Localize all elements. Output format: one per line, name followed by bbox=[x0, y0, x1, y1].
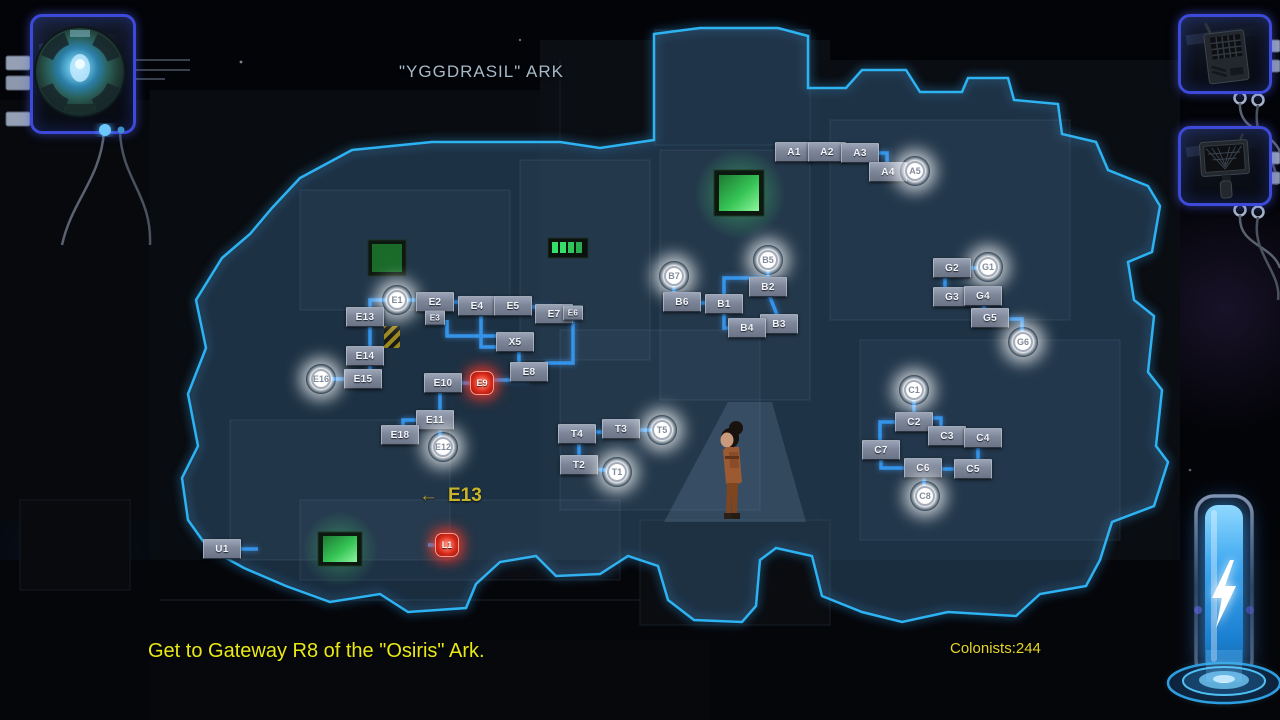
map-node-E13[interactable]: E13 bbox=[346, 307, 384, 327]
map-node-E8[interactable]: E8 bbox=[510, 362, 548, 382]
map-node-E1[interactable]: E1 bbox=[382, 285, 412, 315]
map-node-B4[interactable]: B4 bbox=[728, 318, 766, 338]
map-node-label: C6 bbox=[916, 463, 929, 474]
map-node-C5[interactable]: C5 bbox=[954, 459, 992, 479]
map-node-E2[interactable]: E2 bbox=[416, 292, 454, 312]
map-node-label: T5 bbox=[657, 425, 668, 435]
map-title: "YGGDRASIL" ARK bbox=[399, 62, 564, 82]
map-node-label: L1 bbox=[442, 540, 453, 550]
map-node-C4[interactable]: C4 bbox=[964, 428, 1002, 448]
map-node-E9[interactable]: E9 bbox=[470, 371, 494, 395]
map-node-label: B3 bbox=[772, 319, 785, 330]
direction-sign-label: E13 bbox=[448, 485, 482, 506]
map-node-L1[interactable]: L1 bbox=[435, 533, 459, 557]
map-node-E11[interactable]: E11 bbox=[416, 410, 454, 430]
map-node-label: A1 bbox=[787, 147, 800, 158]
map-node-E6[interactable]: E6 bbox=[563, 306, 583, 321]
map-node-C6[interactable]: C6 bbox=[904, 458, 942, 478]
map-node-B5[interactable]: B5 bbox=[753, 245, 783, 275]
map-node-E4[interactable]: E4 bbox=[458, 296, 496, 316]
map-node-label: T4 bbox=[571, 429, 583, 440]
panel-indicator-lights bbox=[93, 123, 133, 137]
map-node-label: G2 bbox=[945, 263, 959, 274]
map-node-label: E11 bbox=[426, 415, 444, 426]
map-node-label: B4 bbox=[740, 323, 753, 334]
map-node-label: E15 bbox=[354, 374, 373, 385]
map-node-C3[interactable]: C3 bbox=[928, 426, 966, 446]
game-screen: A1A2A3A4A5B5B7B2B6B1B3B4G1G2G3G4G5G6E1E2… bbox=[0, 0, 1280, 720]
colonists-counter: Colonists:244 bbox=[950, 640, 1041, 657]
map-node-label: C5 bbox=[966, 464, 979, 475]
map-node-label: T3 bbox=[615, 424, 627, 435]
map-node-label: C1 bbox=[908, 385, 920, 395]
map-node-C8[interactable]: C8 bbox=[910, 481, 940, 511]
scanner-device-panel[interactable] bbox=[1178, 126, 1272, 206]
map-node-label: E3 bbox=[430, 314, 440, 323]
map-node-label: E6 bbox=[568, 309, 578, 318]
direction-sign: ←E13 bbox=[419, 485, 482, 507]
map-node-G6[interactable]: G6 bbox=[1008, 327, 1038, 357]
map-node-label: G5 bbox=[983, 313, 997, 324]
map-node-label: A3 bbox=[853, 148, 866, 159]
map-node-label: E4 bbox=[471, 301, 484, 312]
map-node-label: T2 bbox=[573, 460, 585, 471]
map-node-label: E8 bbox=[523, 367, 536, 378]
ark-core-icon bbox=[30, 22, 130, 122]
map-node-label: B1 bbox=[717, 299, 730, 310]
map-node-E16[interactable]: E16 bbox=[306, 364, 336, 394]
map-node-X5[interactable]: X5 bbox=[496, 332, 534, 352]
objective-text: Get to Gateway R8 of the "Osiris" Ark. bbox=[148, 640, 485, 663]
map-node-label: E1 bbox=[391, 295, 402, 305]
ark-status-panel[interactable] bbox=[30, 14, 136, 134]
map-node-A3[interactable]: A3 bbox=[841, 143, 879, 163]
radio-transmitter-icon bbox=[1193, 19, 1257, 87]
map-node-label: X5 bbox=[509, 337, 522, 348]
map-node-label: A4 bbox=[881, 167, 894, 178]
map-node-label: E9 bbox=[476, 378, 487, 388]
map-node-G5[interactable]: G5 bbox=[971, 308, 1009, 328]
map-node-label: E2 bbox=[429, 297, 442, 308]
map-node-G1[interactable]: G1 bbox=[973, 252, 1003, 282]
map-node-T1[interactable]: T1 bbox=[602, 457, 632, 487]
map-node-E12[interactable]: E12 bbox=[428, 432, 458, 462]
map-node-label: E13 bbox=[356, 312, 375, 323]
map-node-label: T1 bbox=[612, 467, 623, 477]
map-node-label: G6 bbox=[1017, 337, 1029, 347]
map-node-label: A2 bbox=[820, 147, 833, 158]
map-node-E15[interactable]: E15 bbox=[344, 369, 382, 389]
map-node-label: E5 bbox=[507, 301, 520, 312]
map-node-label: E16 bbox=[313, 374, 329, 384]
map-node-E5[interactable]: E5 bbox=[494, 296, 532, 316]
map-node-label: G4 bbox=[976, 291, 990, 302]
map-node-label: B5 bbox=[762, 255, 774, 265]
map-node-label: G3 bbox=[945, 292, 959, 303]
map-node-label: C3 bbox=[940, 431, 953, 442]
map-node-E18[interactable]: E18 bbox=[381, 425, 419, 445]
left-arrow-icon: ← bbox=[419, 485, 438, 506]
map-node-E3[interactable]: E3 bbox=[425, 311, 445, 326]
map-node-label: A5 bbox=[909, 166, 921, 176]
map-node-label: B2 bbox=[761, 282, 774, 293]
map-node-B1[interactable]: B1 bbox=[705, 294, 743, 314]
map-node-label: U1 bbox=[215, 544, 228, 555]
map-node-G2[interactable]: G2 bbox=[933, 258, 971, 278]
map-node-E14[interactable]: E14 bbox=[346, 346, 384, 366]
map-node-B6[interactable]: B6 bbox=[663, 292, 701, 312]
map-node-label: E14 bbox=[356, 351, 375, 362]
map-node-label: E12 bbox=[435, 442, 451, 452]
map-node-label: C4 bbox=[976, 433, 989, 444]
map-node-label: C8 bbox=[919, 491, 931, 501]
map-node-label: B6 bbox=[675, 297, 688, 308]
map-node-C1[interactable]: C1 bbox=[899, 375, 929, 405]
map-node-C7[interactable]: C7 bbox=[862, 440, 900, 460]
map-node-T2[interactable]: T2 bbox=[560, 455, 598, 475]
map-node-label: G1 bbox=[982, 262, 994, 272]
map-node-B7[interactable]: B7 bbox=[659, 261, 689, 291]
energy-reserve-widget[interactable] bbox=[1160, 460, 1280, 720]
radio-device-panel[interactable] bbox=[1178, 14, 1272, 94]
ark-map-canvas bbox=[0, 0, 1280, 720]
map-node-G4[interactable]: G4 bbox=[964, 286, 1002, 306]
map-node-label: E18 bbox=[391, 430, 410, 441]
map-node-T4[interactable]: T4 bbox=[558, 424, 596, 444]
map-node-U1[interactable]: U1 bbox=[203, 539, 241, 559]
map-node-label: C7 bbox=[874, 445, 887, 456]
map-node-label: C2 bbox=[907, 417, 920, 428]
map-node-B2[interactable]: B2 bbox=[749, 277, 787, 297]
hologram-base bbox=[1162, 650, 1280, 709]
handheld-scanner-icon bbox=[1193, 131, 1257, 201]
map-node-T3[interactable]: T3 bbox=[602, 419, 640, 439]
map-node-T5[interactable]: T5 bbox=[647, 415, 677, 445]
map-node-label: E10 bbox=[434, 378, 453, 389]
map-node-A5[interactable]: A5 bbox=[900, 156, 930, 186]
map-node-E10[interactable]: E10 bbox=[424, 373, 462, 393]
map-node-label: B7 bbox=[668, 271, 680, 281]
map-node-label: E7 bbox=[548, 309, 561, 320]
